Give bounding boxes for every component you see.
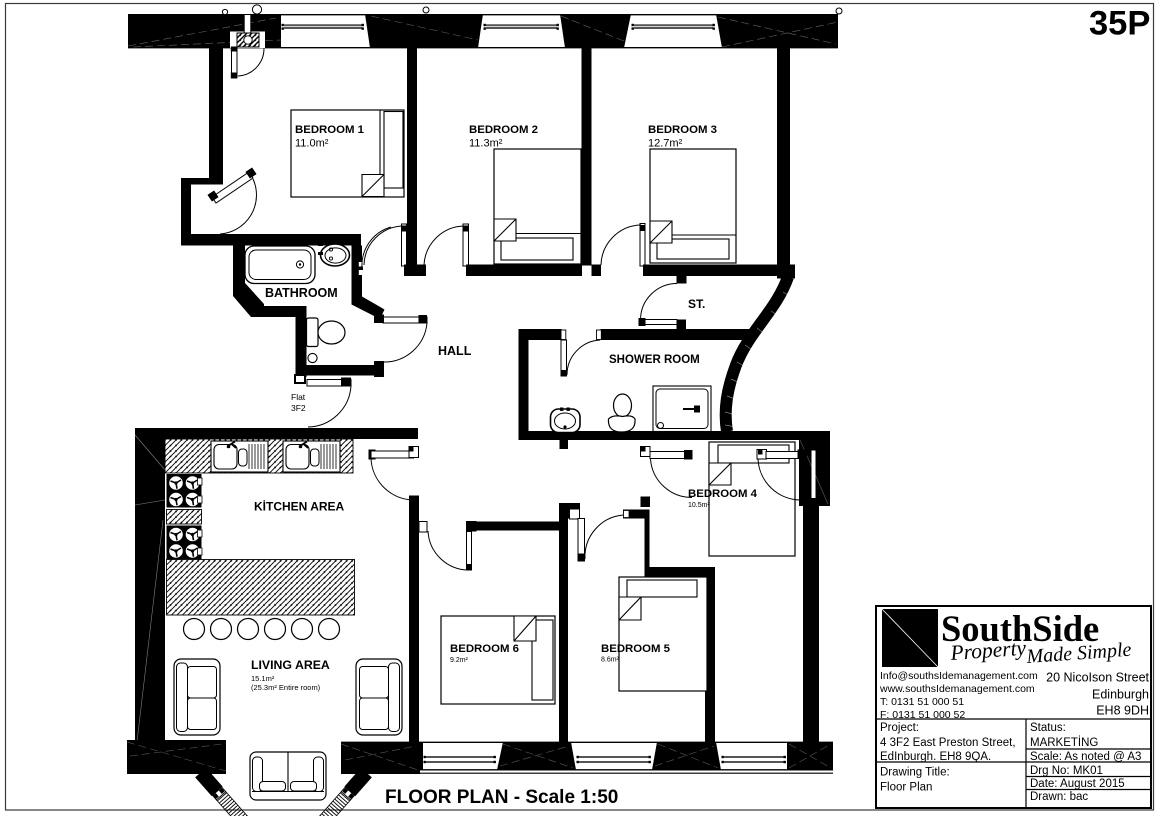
svg-text:T: 0131 51 000 51: T: 0131 51 000 51	[880, 696, 964, 708]
svg-text:FLOOR PLAN - Scale 1:50: FLOOR PLAN - Scale 1:50	[385, 787, 618, 808]
svg-text:9.2m²: 9.2m²	[450, 657, 469, 664]
svg-text:www.southsIdemanagement.com: www.southsIdemanagement.com	[879, 683, 1035, 695]
svg-text:Drawing Title:: Drawing Title:	[880, 767, 950, 779]
svg-text:KİTCHEN AREA: KİTCHEN AREA	[254, 499, 345, 514]
svg-text:4 3F2 East Preston Street,: 4 3F2 East Preston Street,	[880, 737, 1016, 749]
svg-text:Status:: Status:	[1030, 722, 1066, 734]
svg-text:BEDROOM 5: BEDROOM 5	[601, 643, 671, 655]
svg-text:Edinburgh: Edinburgh	[1092, 688, 1149, 702]
svg-text:Flat: Flat	[291, 392, 306, 402]
svg-text:BEDROOM 4: BEDROOM 4	[688, 488, 758, 500]
svg-text:MARKETİNG: MARKETİNG	[1030, 736, 1098, 749]
svg-text:Project:: Project:	[880, 722, 919, 734]
svg-text:15.1m²: 15.1m²	[251, 674, 275, 683]
svg-text:ST.: ST.	[688, 297, 705, 311]
svg-text:BEDROOM 1: BEDROOM 1	[295, 124, 365, 136]
svg-text:EH8 9DH: EH8 9DH	[1096, 704, 1149, 718]
svg-text:Drg No: MK01: Drg No: MK01	[1030, 765, 1103, 777]
svg-text:BEDROOM 3: BEDROOM 3	[648, 124, 717, 136]
svg-text:HALL: HALL	[438, 344, 472, 358]
svg-text:20 NicoIson Street: 20 NicoIson Street	[1046, 671, 1149, 685]
svg-text:8.6m²: 8.6m²	[601, 657, 620, 664]
svg-text:EdInburgh. EH8 9QA.: EdInburgh. EH8 9QA.	[880, 751, 991, 763]
svg-text:10.5m²: 10.5m²	[688, 502, 710, 509]
svg-text:LIVING AREA: LIVING AREA	[251, 658, 330, 672]
svg-text:Drawn: bac: Drawn: bac	[1030, 791, 1088, 803]
svg-text:(25.3m² Entire room): (25.3m² Entire room)	[251, 683, 321, 692]
svg-text:SHOWER ROOM: SHOWER ROOM	[609, 354, 700, 366]
svg-text:BEDROOM 2: BEDROOM 2	[469, 124, 538, 136]
svg-text:3F2: 3F2	[291, 403, 306, 413]
svg-text:Date: August 2015: Date: August 2015	[1030, 778, 1125, 790]
svg-text:11.0m²: 11.0m²	[295, 138, 329, 150]
svg-text:Floor Plan: Floor Plan	[880, 782, 932, 794]
svg-text:BATHROOM: BATHROOM	[265, 286, 338, 300]
svg-text:11.3m²: 11.3m²	[469, 138, 503, 150]
svg-text:Scale: As noted @ A3: Scale: As noted @ A3	[1030, 751, 1141, 763]
svg-text:12.7m²: 12.7m²	[648, 138, 683, 150]
svg-text:BEDROOM 6: BEDROOM 6	[450, 643, 519, 655]
svg-text:35P: 35P	[1089, 5, 1150, 43]
svg-text:Info@southsIdemanagement.com: Info@southsIdemanagement.com	[880, 670, 1038, 682]
